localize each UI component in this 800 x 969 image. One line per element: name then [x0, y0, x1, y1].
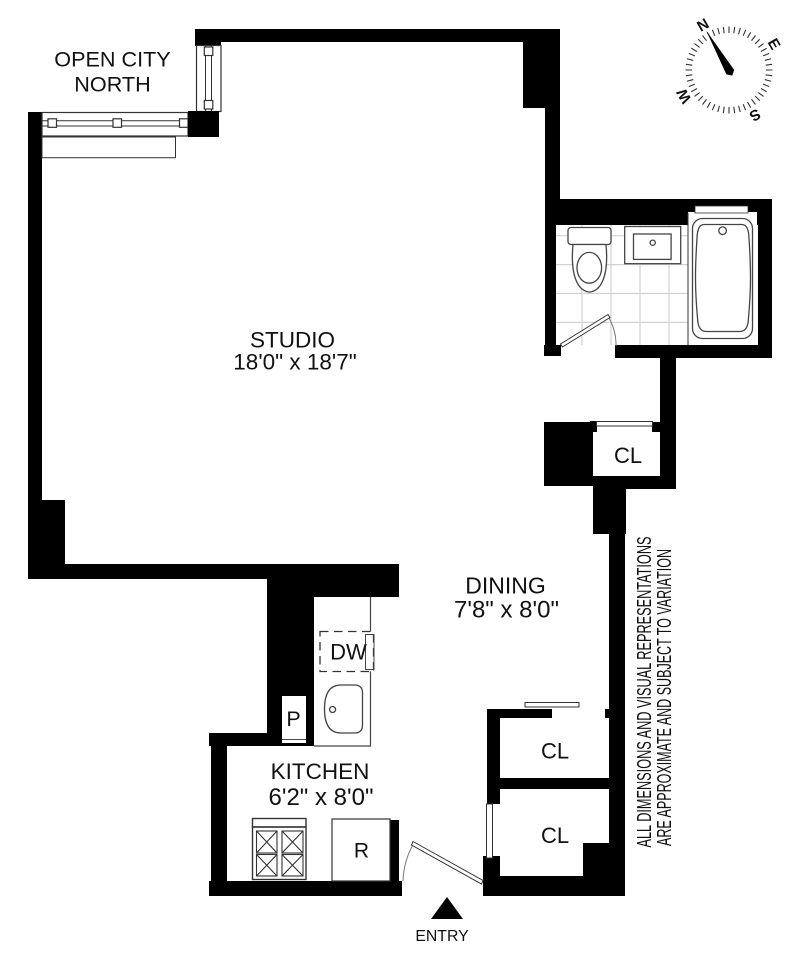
svg-text:DINING: DINING: [465, 573, 546, 599]
svg-text:7'8" x 8'0": 7'8" x 8'0": [454, 597, 559, 624]
svg-text:CL: CL: [614, 443, 642, 468]
svg-text:ALL DIMENSIONS AND VISUAL REPR: ALL DIMENSIONS AND VISUAL REPRESENTATION…: [634, 537, 656, 848]
svg-text:KITCHEN: KITCHEN: [271, 759, 370, 784]
svg-text:R: R: [354, 840, 369, 863]
svg-text:OPEN CITY: OPEN CITY: [54, 47, 170, 72]
svg-text:6'2" x 8'0": 6'2" x 8'0": [269, 784, 374, 811]
svg-text:DW: DW: [330, 640, 367, 665]
svg-text:ENTRY: ENTRY: [415, 928, 469, 945]
svg-text:ARE APPROXIMATE AND SUBJECT TO: ARE APPROXIMATE AND SUBJECT TO VARIATION: [654, 549, 676, 846]
svg-text:18'0" x 18'7": 18'0" x 18'7": [233, 350, 356, 375]
svg-text:NORTH: NORTH: [74, 72, 150, 97]
svg-text:P: P: [286, 707, 300, 731]
svg-text:CL: CL: [541, 739, 569, 764]
svg-text:CL: CL: [541, 823, 569, 848]
